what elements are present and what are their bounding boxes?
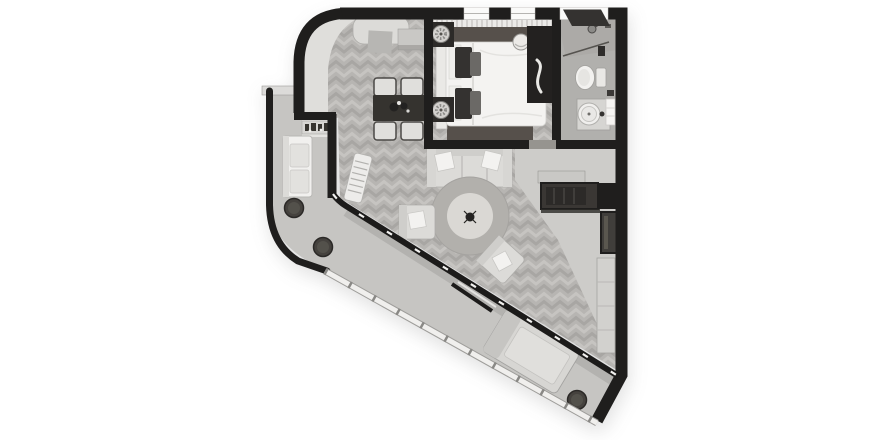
outdoor-cushion: [290, 170, 309, 193]
toilet-tank: [596, 68, 606, 87]
sofa-pillow: [435, 151, 455, 171]
floor-plan-canvas: [0, 0, 890, 440]
closet-interior: [546, 187, 586, 205]
outdoor-sofa: [283, 136, 312, 197]
lamp-center: [440, 109, 443, 112]
table-dish: [406, 109, 409, 112]
outdoor-sofa-back: [283, 136, 289, 197]
bed-pillow-dark: [455, 47, 472, 78]
daybed-blanket: [367, 30, 392, 53]
side-console-edge: [398, 45, 427, 50]
closet-base-line: [541, 209, 600, 213]
bed-pillow-mid: [470, 52, 481, 76]
plant-foliage: [571, 394, 583, 406]
vanity: [577, 99, 615, 130]
dining-chair: [401, 78, 423, 96]
lamp-center: [440, 33, 443, 36]
armchair-back: [399, 205, 407, 239]
sofa-armrest: [503, 145, 512, 187]
tp-holder: [607, 90, 614, 96]
bedroom: [429, 20, 552, 141]
bedroom-door-gap: [529, 140, 556, 149]
dining-chair: [374, 78, 396, 96]
armchair-left: [399, 205, 435, 239]
outdoor-cushion: [290, 144, 309, 167]
entry-door-recess: [601, 212, 618, 253]
dining-set: [373, 78, 428, 140]
dining-chair: [374, 122, 396, 140]
counter-dish: [309, 130, 312, 133]
table-dish: [397, 101, 401, 105]
closet-partition: [538, 171, 585, 183]
table-plant: [390, 103, 399, 112]
dining-table: [373, 95, 428, 121]
sofa-armrest: [427, 145, 436, 187]
dining-chair: [401, 122, 423, 140]
sofa-pillow: [481, 150, 502, 171]
round-stool: [513, 34, 529, 50]
shower-column: [598, 46, 605, 56]
faucet: [600, 112, 605, 117]
armchair-pillow: [408, 211, 427, 230]
basin-drain: [588, 113, 591, 116]
bed-pillow-dark: [455, 88, 472, 119]
bed-pillow-mid: [470, 91, 481, 115]
closet-wall-stub: [598, 183, 618, 209]
counter-dish: [320, 129, 323, 132]
table-plant: [401, 103, 408, 110]
toilet-seat: [578, 69, 590, 86]
entry-door-leaf: [604, 216, 608, 249]
shower-head: [588, 25, 596, 33]
floor-plan-screenshot: [0, 0, 890, 440]
plant-foliage: [288, 202, 300, 214]
plant-foliage: [317, 241, 329, 253]
towels: [606, 99, 615, 125]
